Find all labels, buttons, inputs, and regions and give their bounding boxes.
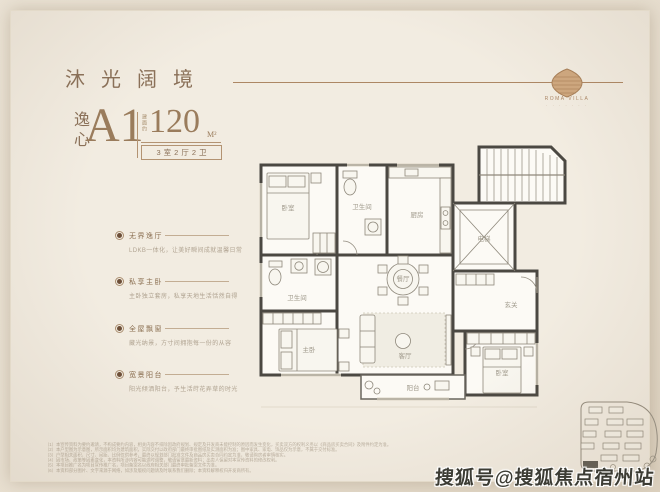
room-label: 阳台 xyxy=(407,383,420,392)
room-label: 厨房 xyxy=(411,210,424,219)
room-label: 电梯 xyxy=(478,234,492,243)
room-label: 卫生间 xyxy=(352,202,372,211)
flyer-card: 沐光阔境 ROMA VILLA · · · · · · · 逸心 A1 建面约 … xyxy=(10,10,650,482)
feature-item: 无界逸厅 LDKB一体化，让美好瞬间成就温馨日常 xyxy=(115,231,245,267)
feature-desc: 藏光纳景，方寸间拥抱每一份的从容 xyxy=(129,338,231,347)
feature-desc: 阳光倾洒阳台，予生活莳花弄草的时光 xyxy=(129,384,238,393)
bullet-dot-icon xyxy=(117,326,122,331)
bullet-dot-icon xyxy=(117,233,122,238)
site-buildings xyxy=(581,407,643,461)
feature-title: 无界逸厅 xyxy=(129,231,163,241)
page-title: 沐光阔境 xyxy=(65,63,209,92)
feature-rule xyxy=(165,235,229,236)
brand-name: ROMA VILLA xyxy=(526,96,608,102)
feature-item: 全屋飘窗 藏光纳景，方寸间拥抱每一份的从容 xyxy=(115,324,245,360)
bullet-dot-icon xyxy=(117,372,122,377)
area-unit: M² xyxy=(207,130,217,139)
room-label: 玄关 xyxy=(505,300,519,309)
floor-plan: 卧室 卫生间 厨房 电梯 玄关 餐厅 客厅 主卧 卫生间 卧室 阳台 xyxy=(257,145,571,411)
unit-divider xyxy=(137,112,138,158)
feature-rule xyxy=(165,328,229,329)
feature-item: 宽景阳台 阳光倾洒阳台，予生活莳花弄草的时光 xyxy=(115,370,245,406)
brand-shell-icon xyxy=(548,67,586,99)
feature-title: 宽景阳台 xyxy=(129,370,163,380)
area-label: 建面约 xyxy=(141,114,148,132)
room-spec-badge: 3室2厅2卫 xyxy=(141,145,222,160)
feature-title: 全屋飘窗 xyxy=(129,324,163,334)
room-label: 主卧 xyxy=(303,345,317,354)
unit-name: A1 xyxy=(85,101,144,151)
room-label: 卫生间 xyxy=(287,293,307,302)
area-underline xyxy=(141,142,221,143)
room-label: 客厅 xyxy=(399,351,413,360)
feature-title: 私享主卧 xyxy=(129,277,163,287)
room-label: 卧室 xyxy=(282,203,296,212)
area-value: 120 xyxy=(149,105,200,139)
room-label: 卧室 xyxy=(496,368,510,377)
feature-item: 私享主卧 主卧独立套房，私享天地生活恬然自得 xyxy=(115,277,245,313)
feature-rule xyxy=(165,281,229,282)
feature-desc: LDKB一体化，让美好瞬间成就温馨日常 xyxy=(129,245,242,254)
room-label: 餐厅 xyxy=(397,274,411,283)
watermark: 搜狐号@搜狐焦点宿州站 xyxy=(435,463,656,490)
feature-rule xyxy=(165,374,229,375)
feature-desc: 主卧独立套房，私享天地生活恬然自得 xyxy=(129,291,238,300)
brand-tagline: · · · · · · · xyxy=(526,103,608,108)
bullet-dot-icon xyxy=(117,279,122,284)
